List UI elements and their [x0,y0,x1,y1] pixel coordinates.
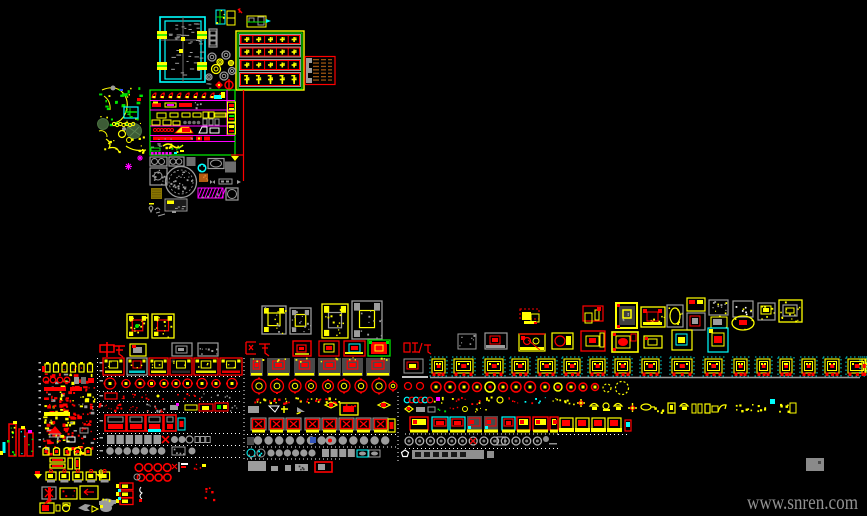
svg-text:www.snren.com: www.snren.com [747,490,858,514]
